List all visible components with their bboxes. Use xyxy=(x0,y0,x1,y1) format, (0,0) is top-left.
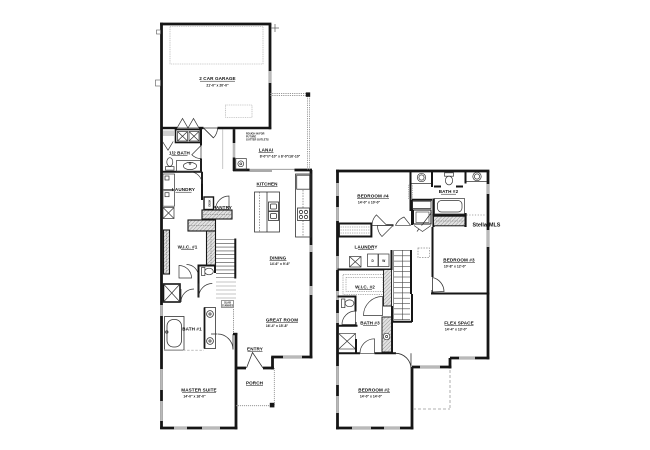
svg-text:StellarMLS: StellarMLS xyxy=(473,223,501,229)
svg-text:DINING: DINING xyxy=(270,256,287,261)
svg-text:PORCH: PORCH xyxy=(246,381,264,386)
svg-text:14'-0" x 10'-0": 14'-0" x 10'-0" xyxy=(358,201,381,205)
svg-text:GREAT ROOM: GREAT ROOM xyxy=(266,318,298,323)
svg-text:BATH #3: BATH #3 xyxy=(360,321,380,326)
svg-text:ENTRY: ENTRY xyxy=(247,347,263,352)
svg-text:DESK: DESK xyxy=(209,199,212,206)
svg-text:LAUNDRY: LAUNDRY xyxy=(355,245,378,250)
svg-text:BEDROOM #3: BEDROOM #3 xyxy=(443,258,475,263)
svg-text:W.I.C. #2: W.I.C. #2 xyxy=(355,285,375,290)
svg-text:GUTTER OUTLETS: GUTTER OUTLETS xyxy=(246,139,269,142)
svg-text:W.I.C. #1: W.I.C. #1 xyxy=(178,245,198,250)
svg-text:LANAI: LANAI xyxy=(259,148,274,153)
svg-text:10'-8" x 12'-0": 10'-8" x 12'-0" xyxy=(444,265,467,269)
svg-text:BATH #2: BATH #2 xyxy=(439,189,459,194)
svg-text:14'-0" x 16'-0": 14'-0" x 16'-0" xyxy=(183,395,206,399)
svg-text:14'-4" x 13'-0": 14'-4" x 13'-0" xyxy=(445,328,468,332)
svg-text:8'-0"/7'-10" x 8'-0"/16'-10": 8'-0"/7'-10" x 8'-0"/16'-10" xyxy=(260,155,301,159)
svg-text:2 CAR GARAGE: 2 CAR GARAGE xyxy=(199,76,235,81)
svg-text:BATH #1: BATH #1 xyxy=(182,327,202,332)
svg-text:W: W xyxy=(382,259,385,263)
svg-text:21'-0" x 20'-0": 21'-0" x 20'-0" xyxy=(206,84,229,88)
svg-text:14'-0" x 14'-0": 14'-0" x 14'-0" xyxy=(360,395,383,399)
svg-text:1/2 BATH: 1/2 BATH xyxy=(169,151,190,156)
svg-text:CUBBIES: CUBBIES xyxy=(222,305,234,308)
svg-text:KITCHEN: KITCHEN xyxy=(256,182,278,187)
svg-text:16'-4" x 15'-8": 16'-4" x 15'-8" xyxy=(266,324,289,328)
svg-text:PANTRY: PANTRY xyxy=(213,205,232,210)
svg-text:BEDROOM #2: BEDROOM #2 xyxy=(358,388,390,393)
svg-text:MASTER SUITE: MASTER SUITE xyxy=(181,388,216,393)
svg-text:FLEX SPACE: FLEX SPACE xyxy=(444,321,474,326)
svg-text:14'-6" x 9'-6": 14'-6" x 9'-6" xyxy=(270,262,291,266)
svg-text:LAUNDRY: LAUNDRY xyxy=(172,187,195,192)
svg-text:BEDROOM #4: BEDROOM #4 xyxy=(357,194,389,199)
